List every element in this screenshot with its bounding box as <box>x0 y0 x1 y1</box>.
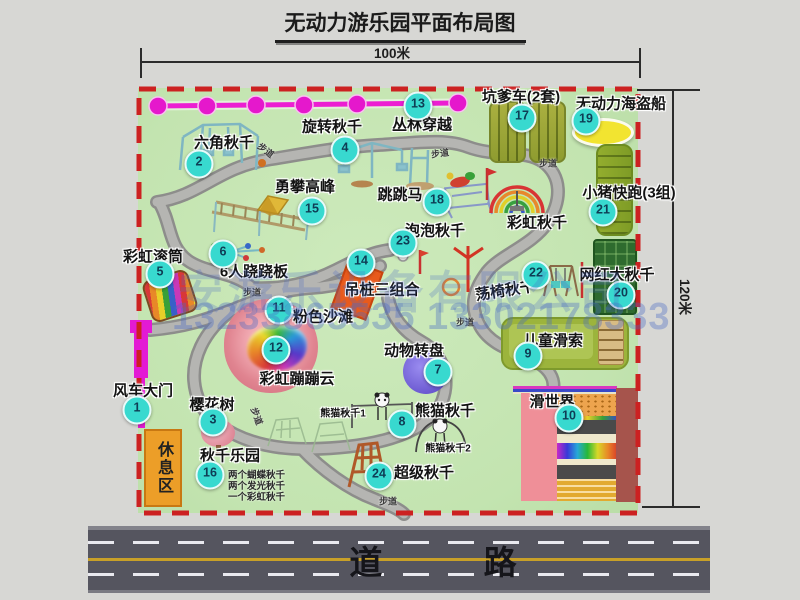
label-pile-combo: 吊桩三组合 <box>344 279 419 300</box>
badge-11: 11 <box>265 296 294 325</box>
road-strip: 道 路 <box>88 526 710 593</box>
badge-17: 17 <box>508 104 537 133</box>
rest-area-label: 休息区 <box>151 441 175 495</box>
badge-5: 5 <box>146 260 175 289</box>
badge-18: 18 <box>423 188 452 217</box>
badge-6: 6 <box>209 240 238 269</box>
badge-20: 20 <box>607 281 636 310</box>
badge-19: 19 <box>572 107 601 136</box>
badge-2: 2 <box>185 150 214 179</box>
label-panda-swing: 熊猫秋千 <box>415 400 475 421</box>
slide-stripe <box>557 479 618 501</box>
swing-park-note-3: 一个彩虹秋千 <box>228 489 285 503</box>
badge-21: 21 <box>589 198 618 227</box>
height-dimension-label: 120米 <box>676 279 696 315</box>
rest-area-block: 休息区 <box>144 429 182 507</box>
badge-16: 16 <box>196 461 225 490</box>
windmill-gate-shape <box>130 320 152 333</box>
label-pink-beach: 粉色沙滩 <box>293 306 353 327</box>
title-text: 无动力游乐园平面布局图 <box>275 7 526 43</box>
walkway-label: 步道 <box>456 316 474 329</box>
slide-stripe <box>557 443 618 459</box>
badge-14: 14 <box>347 249 376 278</box>
label-panda-swing-1: 熊猫秋千1 <box>320 405 366 420</box>
label-rotary-swing: 旋转秋千 <box>302 116 362 137</box>
badge-10: 10 <box>555 404 584 433</box>
badge-22: 22 <box>522 261 551 290</box>
badge-13: 13 <box>404 92 433 121</box>
badge-7: 7 <box>424 358 453 387</box>
badge-12: 12 <box>262 336 291 365</box>
park-layout-diagram: 无动力游乐园平面布局图 <box>0 0 800 600</box>
walkway-label: 步道 <box>243 286 261 299</box>
label-panda-swing-2: 熊猫秋千2 <box>425 440 471 455</box>
walkway-label: 步道 <box>379 495 397 508</box>
page-title: 无动力游乐园平面布局图 <box>0 7 800 43</box>
walkway-label: 步道 <box>539 157 557 170</box>
slide-stripe <box>557 465 618 479</box>
width-dimension-label: 100米 <box>374 42 410 62</box>
label-rainbow-cloud: 彩虹蹦蹦云 <box>259 368 334 389</box>
kids-zipline-ladder <box>598 320 624 365</box>
badge-24: 24 <box>365 462 394 491</box>
badge-3: 3 <box>199 408 228 437</box>
walkway-label: 步道 <box>430 145 449 160</box>
windmill-gate-shape <box>134 333 148 378</box>
badge-4: 4 <box>331 136 360 165</box>
slide-stripe <box>557 434 618 443</box>
road-label: 道 路 <box>303 536 562 584</box>
label-jump-horse: 跳跳马 <box>377 184 422 205</box>
slide-world-side-block <box>616 388 638 502</box>
badge-15: 15 <box>298 197 327 226</box>
badge-9: 9 <box>514 342 543 371</box>
badge-1: 1 <box>123 396 152 425</box>
label-super-swing: 超级秋千 <box>394 462 454 483</box>
badge-8: 8 <box>388 410 417 439</box>
badge-23: 23 <box>389 229 418 258</box>
label-rainbow-swing: 彩虹秋千 <box>507 212 567 233</box>
label-climbing-peak: 勇攀高峰 <box>275 176 335 197</box>
